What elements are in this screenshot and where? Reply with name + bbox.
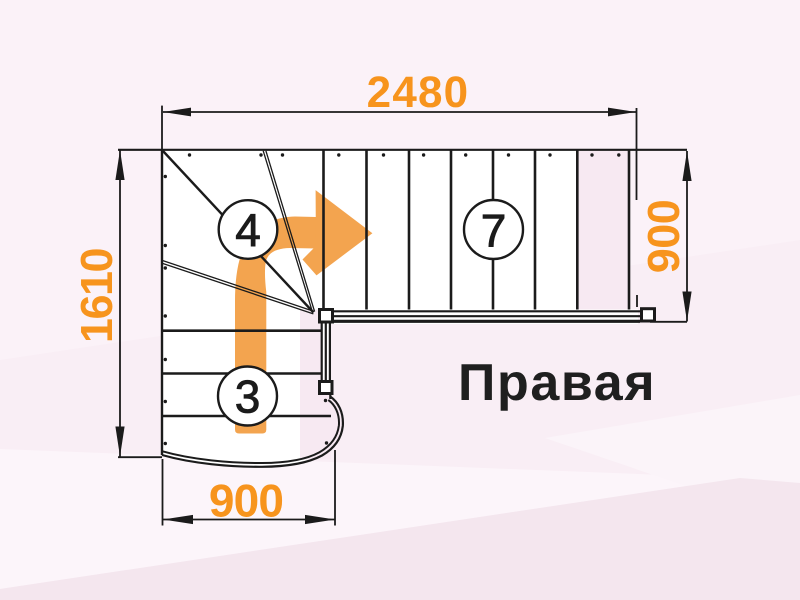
svg-text:Правая: Правая xyxy=(458,354,656,412)
svg-text:900: 900 xyxy=(209,475,283,527)
svg-text:4: 4 xyxy=(235,204,261,256)
svg-text:1610: 1610 xyxy=(71,248,122,343)
svg-text:3: 3 xyxy=(235,371,261,423)
svg-text:7: 7 xyxy=(481,205,507,257)
svg-text:900: 900 xyxy=(638,200,689,274)
svg-text:2480: 2480 xyxy=(367,68,470,117)
